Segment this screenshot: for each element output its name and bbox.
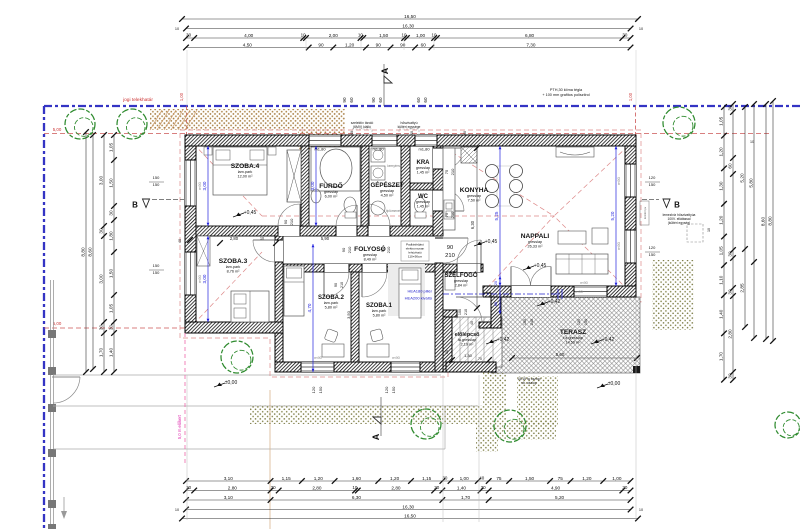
svg-text:B: B <box>132 201 138 210</box>
svg-text:150: 150 <box>153 270 160 275</box>
svg-text:150: 150 <box>153 175 160 180</box>
svg-text:3,00: 3,00 <box>99 274 104 284</box>
svg-text:gresslap: gresslap <box>324 190 338 194</box>
svg-text:90: 90 <box>400 42 406 47</box>
svg-text:30: 30 <box>186 33 192 38</box>
svg-text:1,30: 1,30 <box>464 353 473 358</box>
svg-text:SZOBA.3: SZOBA.3 <box>219 258 248 265</box>
svg-text:90: 90 <box>342 97 347 103</box>
svg-text:+ 100 mm grafitos polisztirol: + 100 mm grafitos polisztirol <box>542 93 590 97</box>
svg-text:1,20: 1,20 <box>719 215 724 225</box>
svg-text:3,50: 3,50 <box>346 310 351 319</box>
svg-text:1,15: 1,15 <box>422 476 432 481</box>
svg-text:90: 90 <box>341 247 346 252</box>
svg-text:100: 100 <box>458 309 462 315</box>
svg-text:5,00: 5,00 <box>53 321 62 326</box>
svg-text:HEA200 kiváltó: HEA200 kiváltó <box>405 296 433 301</box>
svg-text:30: 30 <box>728 105 733 111</box>
svg-text:10: 10 <box>402 33 408 38</box>
svg-text:1,80: 1,80 <box>109 231 114 241</box>
svg-text:SZOBA.4: SZOBA.4 <box>231 163 260 170</box>
svg-text:1,00: 1,00 <box>628 92 633 101</box>
svg-text:3,00: 3,00 <box>310 181 315 190</box>
svg-text:1,50: 1,50 <box>109 269 114 279</box>
svg-text:m1,80: m1,80 <box>372 147 384 152</box>
svg-text:gresslap: gresslap <box>528 240 542 244</box>
svg-text:1,20: 1,20 <box>719 147 724 157</box>
svg-text:150: 150 <box>523 319 527 325</box>
svg-text:2,19 m²: 2,19 m² <box>461 343 475 347</box>
svg-text:120: 120 <box>649 175 656 180</box>
svg-text:8,80: 8,80 <box>768 216 773 226</box>
svg-text:gresslap: gresslap <box>467 194 481 198</box>
svg-text:1,50: 1,50 <box>525 476 535 481</box>
svg-text:±0,00: ±0,00 <box>225 380 238 386</box>
svg-text:1,40: 1,40 <box>109 348 114 358</box>
svg-text:90: 90 <box>376 42 382 47</box>
svg-text:10: 10 <box>639 27 643 31</box>
svg-text:120: 120 <box>577 319 581 325</box>
svg-text:10: 10 <box>260 237 264 241</box>
svg-text:jogi telekhatár: jogi telekhatár <box>122 97 153 103</box>
svg-text:10: 10 <box>750 140 754 144</box>
svg-text:m90: m90 <box>616 241 621 250</box>
svg-text:1,00: 1,00 <box>416 33 426 38</box>
svg-text:10: 10 <box>175 508 179 512</box>
svg-text:vb. oszlop: vb. oszlop <box>521 381 536 385</box>
svg-text:gresslap: gresslap <box>454 279 468 283</box>
svg-text:1,05: 1,05 <box>109 304 114 314</box>
svg-text:150: 150 <box>318 386 323 393</box>
svg-text:1,50: 1,50 <box>379 33 389 38</box>
svg-text:1,20: 1,20 <box>314 476 324 481</box>
svg-text:30: 30 <box>99 228 104 234</box>
svg-text:16,30: 16,30 <box>402 23 414 28</box>
svg-text:120: 120 <box>649 245 656 250</box>
svg-text:1,05: 1,05 <box>719 246 724 256</box>
svg-text:2,80: 2,80 <box>312 485 322 490</box>
svg-text:60: 60 <box>728 163 733 169</box>
svg-text:240: 240 <box>530 319 534 325</box>
svg-text:5,25: 5,25 <box>494 211 499 220</box>
svg-text:1,20: 1,20 <box>582 476 592 481</box>
svg-text:10: 10 <box>358 33 364 38</box>
svg-text:1,00: 1,00 <box>460 476 470 481</box>
svg-text:60: 60 <box>423 97 428 103</box>
svg-text:gresslap: gresslap <box>416 200 430 204</box>
svg-text:40: 40 <box>410 131 414 135</box>
svg-text:210: 210 <box>289 218 294 225</box>
svg-text:1,45 m²: 1,45 m² <box>417 205 431 209</box>
svg-text:KONYHA: KONYHA <box>460 187 489 194</box>
svg-text:75: 75 <box>558 476 564 481</box>
svg-text:+0,42: +0,42 <box>602 337 615 343</box>
svg-text:210: 210 <box>347 246 352 253</box>
svg-text:kemyénv.: kemyénv. <box>387 164 401 168</box>
svg-text:40: 40 <box>445 350 449 354</box>
svg-text:30: 30 <box>434 485 440 490</box>
svg-text:70: 70 <box>478 357 482 361</box>
svg-text:75: 75 <box>496 476 502 481</box>
svg-text:30: 30 <box>622 485 628 490</box>
svg-text:60: 60 <box>349 97 354 103</box>
svg-text:4,70: 4,70 <box>307 303 312 312</box>
svg-text:1,50: 1,50 <box>109 178 114 188</box>
svg-text:B: B <box>674 201 680 210</box>
svg-text:gresslap: gresslap <box>416 166 430 170</box>
svg-text:16,50: 16,50 <box>404 14 416 19</box>
svg-text:30: 30 <box>271 485 277 490</box>
svg-text:10: 10 <box>639 508 643 512</box>
svg-text:5,00: 5,00 <box>53 127 62 132</box>
svg-text:m90: m90 <box>616 176 621 185</box>
svg-text:8,49 m²: 8,49 m² <box>364 258 378 262</box>
svg-text:6,80: 6,80 <box>525 33 535 38</box>
svg-text:+0,45: +0,45 <box>485 239 498 245</box>
svg-text:6,00 m²: 6,00 m² <box>325 195 339 199</box>
svg-text:3,00: 3,00 <box>202 181 207 190</box>
svg-text:90: 90 <box>447 245 453 251</box>
svg-text:60: 60 <box>421 42 427 47</box>
svg-text:14,56 m²: 14,56 m² <box>566 341 582 345</box>
svg-text:1,00: 1,00 <box>179 92 184 101</box>
svg-text:60: 60 <box>416 97 421 103</box>
svg-text:GÉPÉSZET: GÉPÉSZET <box>370 181 403 189</box>
svg-text:1,70: 1,70 <box>719 352 724 362</box>
svg-text:6,30: 6,30 <box>352 495 362 500</box>
svg-text:lam.park: lam.park <box>372 309 387 313</box>
svg-text:m90: m90 <box>197 274 202 283</box>
svg-text:f.a gresslap: f.a gresslap <box>563 336 583 340</box>
svg-text:m1,80: m1,80 <box>418 147 430 152</box>
svg-text:A: A <box>380 67 390 74</box>
svg-text:30: 30 <box>728 289 733 295</box>
svg-text:(kültéri egység): (kültéri egység) <box>668 221 691 225</box>
svg-text:1,45 m²: 1,45 m² <box>417 171 431 175</box>
svg-text:m90: m90 <box>197 181 202 190</box>
svg-text:7,30: 7,30 <box>526 42 536 47</box>
svg-text:1,10: 1,10 <box>719 275 724 285</box>
svg-text:8,76 m²: 8,76 m² <box>227 270 241 274</box>
svg-text:3,00: 3,00 <box>202 274 207 283</box>
svg-text:1,05: 1,05 <box>109 143 114 153</box>
svg-text:PTH,30 klíma tégla: PTH,30 klíma tégla <box>550 88 583 92</box>
svg-text:210: 210 <box>340 282 344 288</box>
svg-text:30: 30 <box>109 210 114 216</box>
svg-text:5,20: 5,20 <box>610 211 615 220</box>
svg-text:30: 30 <box>622 33 628 38</box>
svg-text:150: 150 <box>153 263 160 268</box>
svg-text:A: A <box>371 433 381 440</box>
svg-text:4,50: 4,50 <box>243 42 253 47</box>
svg-text:SZÉLFOGÓ: SZÉLFOGÓ <box>445 271 478 279</box>
svg-text:30: 30 <box>99 325 104 331</box>
svg-text:2,80: 2,80 <box>728 329 733 339</box>
svg-text:7,50 m²: 7,50 m² <box>468 199 482 203</box>
svg-text:1,70: 1,70 <box>99 348 104 358</box>
svg-text:26,33 m²: 26,33 m² <box>528 245 544 249</box>
svg-text:90: 90 <box>283 219 288 224</box>
svg-text:fa.gresslap: fa.gresslap <box>458 338 477 342</box>
svg-text:1,70: 1,70 <box>461 495 471 500</box>
svg-text:gresslap: gresslap <box>363 253 377 257</box>
svg-text:40: 40 <box>479 476 485 481</box>
svg-text:m90: m90 <box>314 355 323 360</box>
svg-text:10: 10 <box>301 33 307 38</box>
svg-text:10: 10 <box>707 228 711 232</box>
svg-text:75: 75 <box>444 212 449 217</box>
svg-text:2,84 m²: 2,84 m² <box>455 284 469 288</box>
svg-text:75: 75 <box>444 169 449 174</box>
svg-text:85: 85 <box>494 302 498 306</box>
svg-text:90: 90 <box>318 42 324 47</box>
svg-text:60: 60 <box>378 97 383 103</box>
svg-text:1,60: 1,60 <box>352 476 362 481</box>
svg-text:40: 40 <box>178 239 182 243</box>
svg-text:150: 150 <box>649 182 656 187</box>
svg-text:10: 10 <box>175 27 179 31</box>
svg-text:4,50 m²: 4,50 m² <box>381 194 395 198</box>
svg-text:m1,80: m1,80 <box>314 147 326 152</box>
svg-text:(6MV) kiálló: (6MV) kiálló <box>353 125 371 129</box>
svg-text:150: 150 <box>649 252 656 257</box>
svg-text:210: 210 <box>450 211 455 218</box>
svg-text:6,30: 6,30 <box>470 220 475 229</box>
svg-text:5,0 m előkert: 5,0 m előkert <box>177 414 182 439</box>
svg-text:5,60: 5,60 <box>556 352 565 357</box>
svg-text:3,10: 3,10 <box>224 495 234 500</box>
svg-text:90: 90 <box>371 97 376 103</box>
svg-text:40: 40 <box>350 131 354 135</box>
svg-text:5,80 m²: 5,80 m² <box>373 314 387 318</box>
svg-text:+0,42: +0,42 <box>548 299 561 305</box>
svg-text:210: 210 <box>450 168 455 175</box>
svg-text:kézikönyv: kézikönyv <box>643 206 647 219</box>
svg-text:1,40: 1,40 <box>719 309 724 319</box>
svg-text:1,05: 1,05 <box>719 116 724 126</box>
svg-text:110×90cm: 110×90cm <box>408 255 423 259</box>
svg-text:30: 30 <box>728 373 733 379</box>
svg-text:m90: m90 <box>575 289 584 294</box>
svg-text:5,80 m²: 5,80 m² <box>325 306 339 310</box>
svg-text:+0,45: +0,45 <box>534 263 547 269</box>
svg-text:210: 210 <box>386 246 391 253</box>
svg-text:3,10: 3,10 <box>224 476 234 481</box>
svg-text:+0,42: +0,42 <box>497 337 510 343</box>
svg-text:40: 40 <box>470 321 474 325</box>
svg-text:5,90: 5,90 <box>321 236 330 241</box>
svg-text:150: 150 <box>153 182 160 187</box>
svg-text:HEA180 pillér: HEA180 pillér <box>408 289 433 294</box>
svg-text:8,60: 8,60 <box>761 217 766 227</box>
svg-text:4,90: 4,90 <box>551 485 561 490</box>
svg-text:lam.park: lam.park <box>226 265 241 269</box>
svg-text:5,20: 5,20 <box>555 495 565 500</box>
svg-text:120: 120 <box>311 386 316 393</box>
svg-text:gresslap: gresslap <box>380 189 394 193</box>
svg-text:1,40: 1,40 <box>457 485 467 490</box>
svg-text:8,60: 8,60 <box>88 247 93 257</box>
svg-text:150: 150 <box>391 386 396 393</box>
svg-text:FÜRDŐ: FÜRDŐ <box>319 181 342 190</box>
svg-text:±0,00: ±0,00 <box>608 381 621 387</box>
svg-text:TERASZ: TERASZ <box>560 329 586 336</box>
svg-text:kültéri egysége: kültéri egysége <box>398 125 421 129</box>
svg-text:tiplómenets: tiplómenets <box>386 209 403 213</box>
svg-text:5,20: 5,20 <box>740 173 745 183</box>
svg-text:30: 30 <box>728 251 733 257</box>
svg-text:2,85: 2,85 <box>740 283 745 293</box>
svg-text:2,80: 2,80 <box>391 485 401 490</box>
svg-text:lam.park: lam.park <box>324 301 339 305</box>
svg-text:10: 10 <box>432 33 438 38</box>
svg-text:16,30: 16,30 <box>402 504 414 509</box>
svg-text:4,00: 4,00 <box>244 33 254 38</box>
svg-text:40: 40 <box>463 131 467 135</box>
svg-text:210: 210 <box>445 253 455 259</box>
svg-text:3,00: 3,00 <box>99 176 104 186</box>
svg-text:+0,45: +0,45 <box>244 210 257 216</box>
svg-text:1,20: 1,20 <box>390 476 400 481</box>
svg-text:8,80: 8,80 <box>81 247 86 257</box>
svg-text:10: 10 <box>352 485 358 490</box>
svg-text:5,80: 5,80 <box>749 178 754 188</box>
svg-text:m90: m90 <box>392 355 401 360</box>
svg-text:1,00: 1,00 <box>612 476 622 481</box>
svg-text:20: 20 <box>494 281 498 285</box>
svg-text:12,00 m²: 12,00 m² <box>238 175 254 179</box>
svg-text:1,20: 1,20 <box>345 42 355 47</box>
svg-text:30: 30 <box>109 325 114 331</box>
svg-text:90: 90 <box>380 247 385 252</box>
svg-text:150: 150 <box>584 319 588 325</box>
svg-text:90: 90 <box>334 283 338 287</box>
svg-text:120: 120 <box>384 386 389 393</box>
svg-text:NAPPALI: NAPPALI <box>521 233 550 240</box>
svg-text:lam.park: lam.park <box>238 170 253 174</box>
svg-text:1,15: 1,15 <box>282 476 292 481</box>
svg-text:2,80: 2,80 <box>230 236 239 241</box>
svg-text:210: 210 <box>464 309 468 315</box>
svg-text:16,50: 16,50 <box>404 513 416 518</box>
svg-text:2,80: 2,80 <box>228 485 238 490</box>
svg-text:m90: m90 <box>580 280 589 285</box>
svg-text:1,30: 1,30 <box>719 181 724 191</box>
svg-text:30: 30 <box>481 485 487 490</box>
svg-text:2,00: 2,00 <box>329 33 339 38</box>
